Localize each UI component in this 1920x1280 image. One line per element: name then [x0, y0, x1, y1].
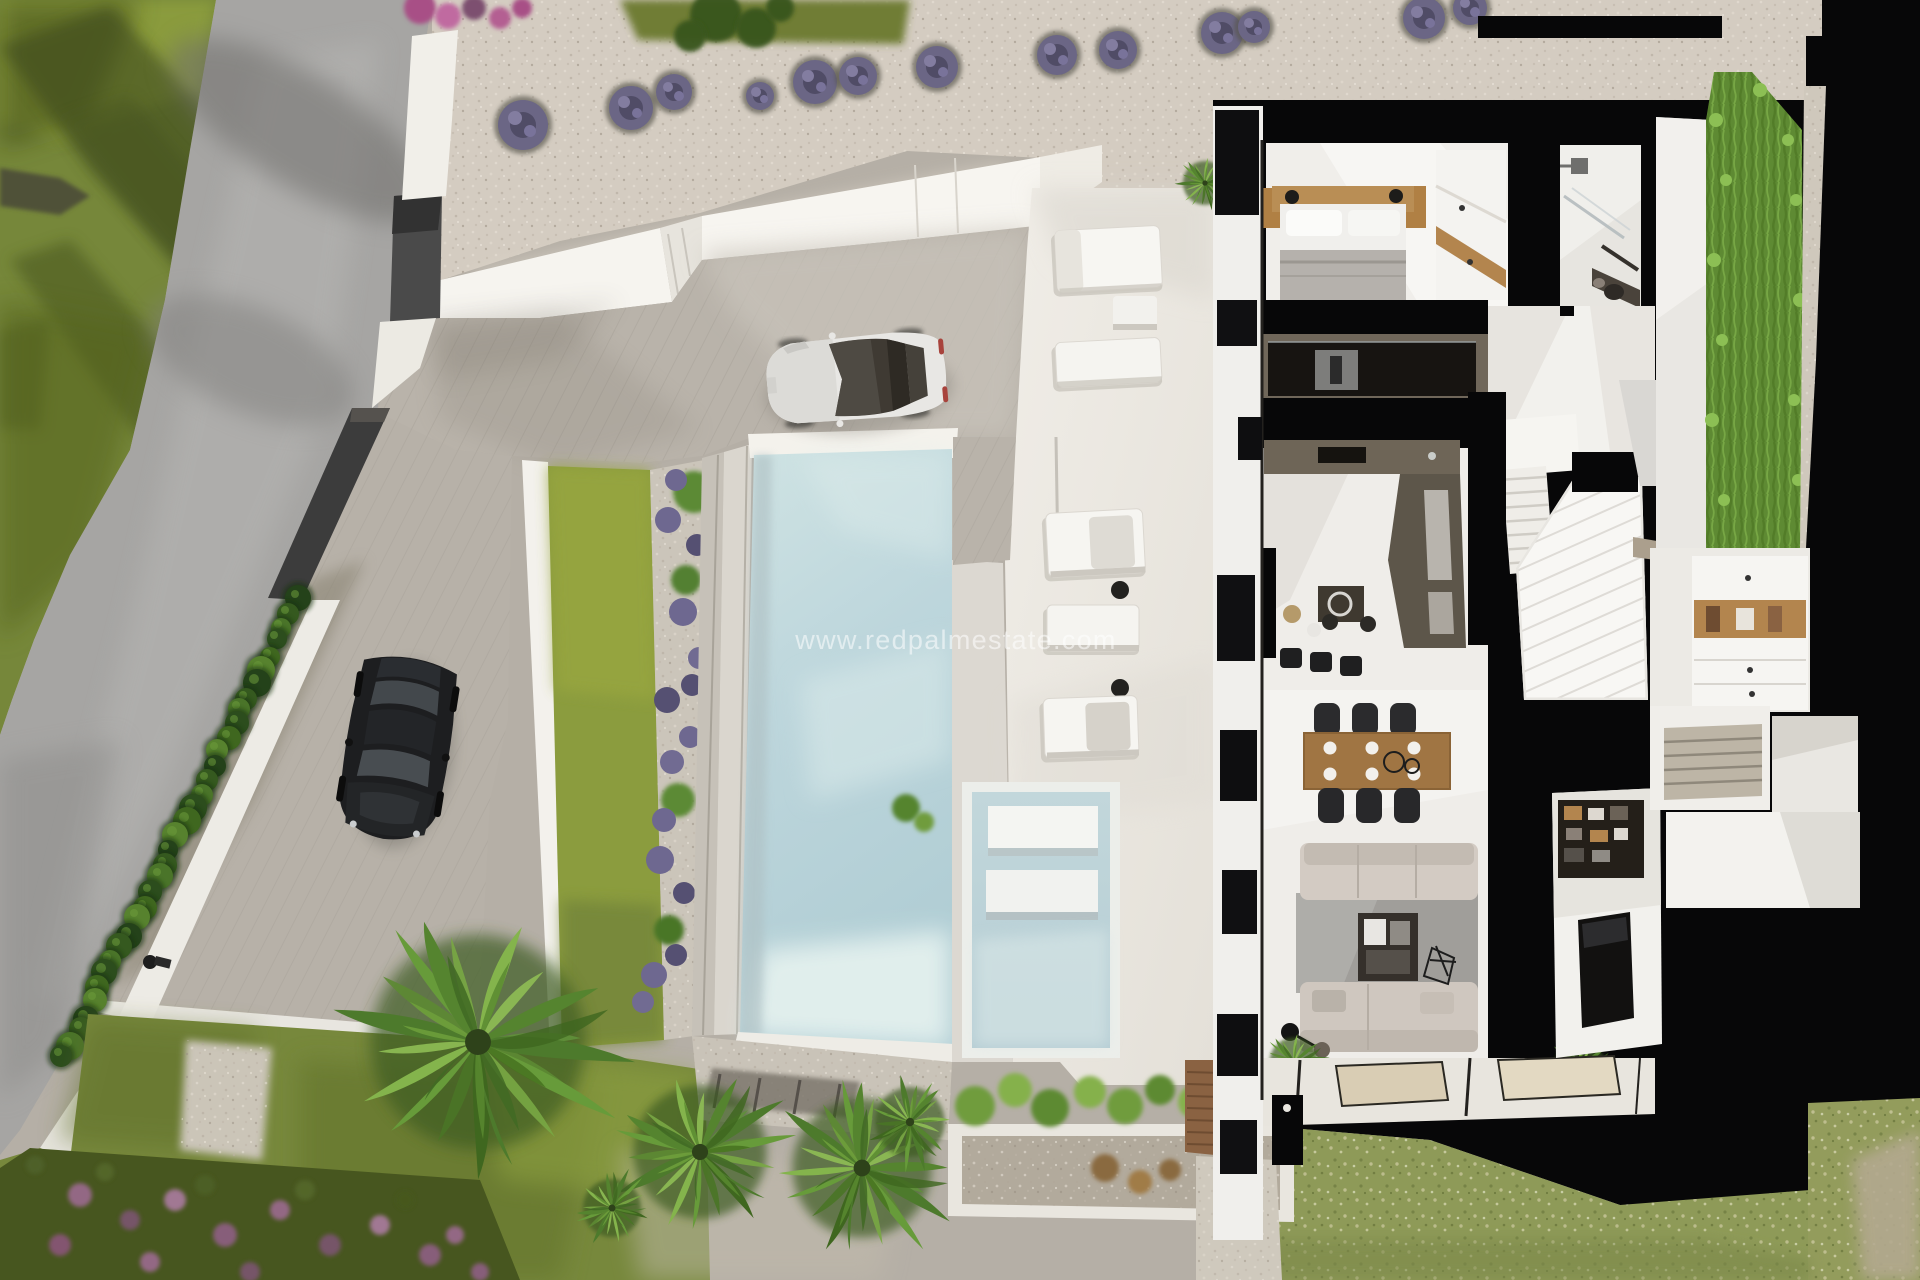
svg-text:www.redpalmestate.com: www.redpalmestate.com: [794, 625, 1116, 655]
